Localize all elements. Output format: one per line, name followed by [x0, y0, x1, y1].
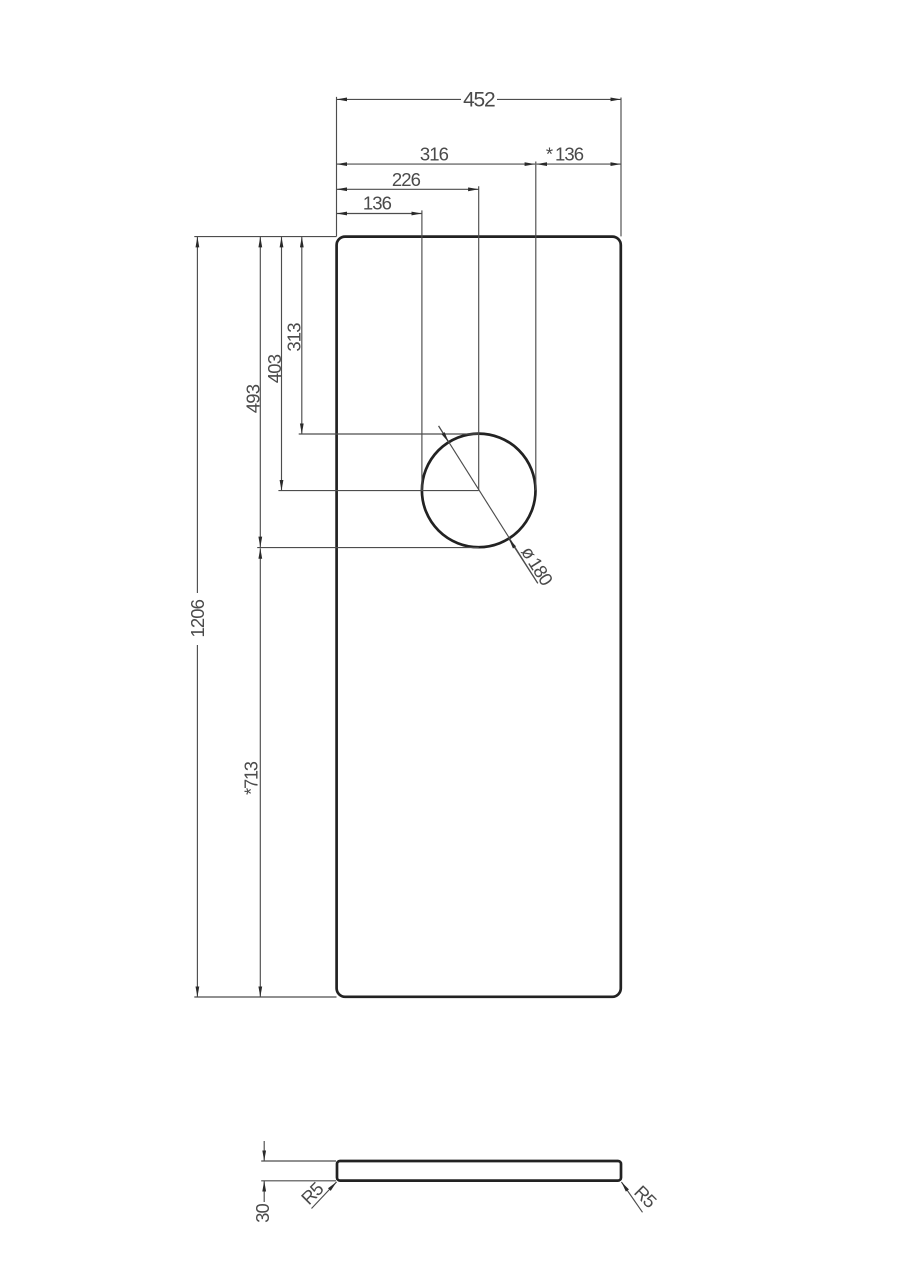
- svg-text:ø 180: ø 180: [517, 542, 557, 589]
- svg-text:R5: R5: [297, 1178, 328, 1209]
- svg-text:452: 452: [463, 88, 495, 111]
- svg-text:316: 316: [420, 144, 449, 165]
- svg-text:1206: 1206: [187, 599, 208, 637]
- svg-text:R5: R5: [630, 1181, 661, 1212]
- svg-text:226: 226: [392, 169, 421, 190]
- svg-text:136: 136: [363, 193, 392, 214]
- svg-text:403: 403: [264, 354, 285, 383]
- svg-text:*713: *713: [242, 761, 262, 795]
- svg-text:313: 313: [284, 323, 305, 352]
- svg-text:* 136: * 136: [546, 144, 584, 165]
- svg-text:30: 30: [252, 1204, 273, 1223]
- svg-text:493: 493: [242, 384, 263, 413]
